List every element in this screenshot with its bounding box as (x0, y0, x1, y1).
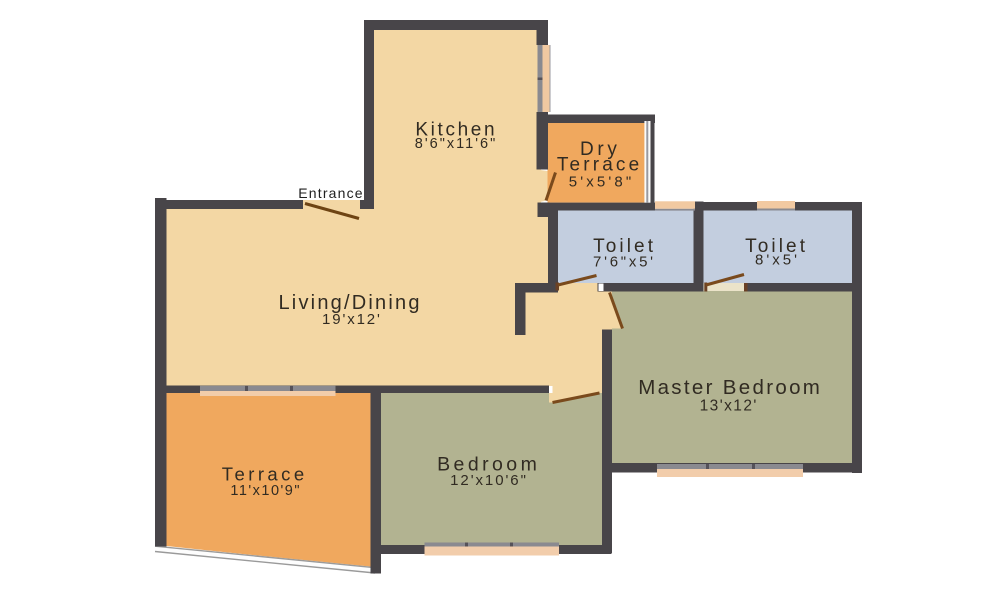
svg-text:12'x10'6": 12'x10'6" (450, 472, 528, 489)
svg-text:11'x10'9": 11'x10'9" (230, 483, 301, 499)
svg-text:8'x5': 8'x5' (755, 252, 800, 269)
svg-text:Entrance: Entrance (298, 185, 363, 201)
svg-text:5'x5'8": 5'x5'8" (569, 174, 635, 191)
svg-text:19'x12': 19'x12' (322, 311, 382, 328)
svg-text:8'6"x11'6": 8'6"x11'6" (415, 136, 498, 152)
svg-text:7'6"x5': 7'6"x5' (593, 254, 656, 271)
svg-text:13'x12': 13'x12' (700, 398, 758, 415)
svg-text:Terrace: Terrace (222, 464, 308, 485)
svg-text:Terrace: Terrace (557, 155, 642, 176)
svg-text:Master Bedroom: Master Bedroom (638, 376, 822, 399)
